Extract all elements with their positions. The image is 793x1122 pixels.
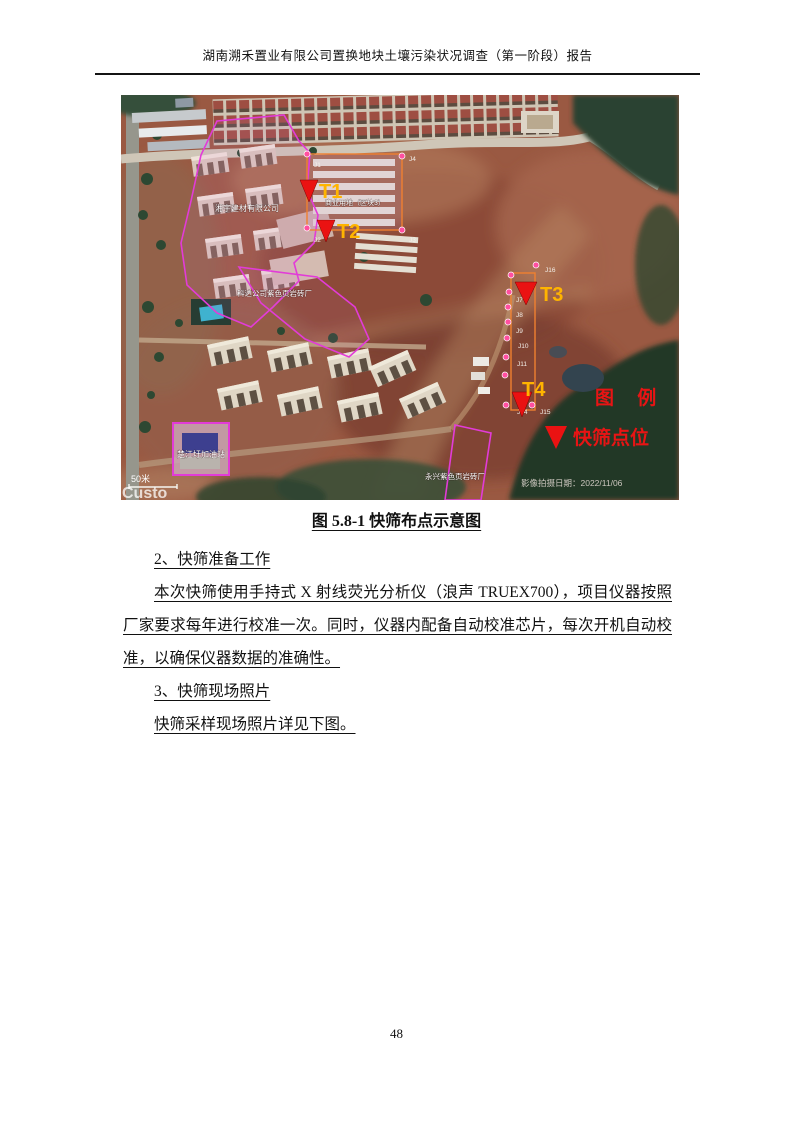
site-label-factory-left: 湘宇建材有限公司 bbox=[215, 203, 279, 213]
point-label-j8: J8 bbox=[516, 312, 523, 319]
pond-small bbox=[549, 346, 567, 358]
satellite-map: J1 J2 J3 J4 J16 J7 J8 J9 J10 J11 J14 J15… bbox=[121, 95, 679, 500]
site-label-gas-station: 楚江圩加油站 bbox=[177, 449, 225, 459]
point-label-j11: J11 bbox=[517, 361, 527, 368]
point-label-j16: J16 bbox=[545, 267, 556, 274]
marker-label-t4: T4 bbox=[522, 379, 546, 401]
section3-heading-text: 3、快筛现场照片 bbox=[154, 683, 270, 700]
capture-date: 影像拍摄日期：2022/11/06 bbox=[521, 478, 623, 488]
gas-station bbox=[173, 423, 229, 475]
scale-label: 50米 bbox=[131, 473, 150, 484]
body-text: 2、快筛准备工作 本次快筛使用手持式 X 射线荧光分析仪（浪声 TRUEX700… bbox=[123, 543, 672, 741]
marker-label-t2: T2 bbox=[337, 221, 360, 243]
marker-label-t1: T1 bbox=[319, 181, 342, 203]
point-label-j1: J1 bbox=[314, 162, 321, 169]
header-title: 湖南溯禾置业有限公司置换地块土壤污染状况调查（第一阶段）报告 bbox=[202, 49, 592, 63]
site-label-brick-factory: 科达公司紫色页岩砖厂 bbox=[237, 288, 312, 298]
point-label-j2: J2 bbox=[314, 237, 321, 244]
section3-heading: 3、快筛现场照片 bbox=[123, 675, 672, 708]
map-watermark: Custo bbox=[122, 485, 168, 500]
point-label-j15: J15 bbox=[540, 409, 551, 416]
point-label-j4: J4 bbox=[409, 156, 416, 163]
site-label-brick-factory-south: 永兴紫色页岩砖厂 bbox=[425, 471, 485, 481]
point-label-j7: J7 bbox=[516, 297, 523, 304]
point-label-j9: J9 bbox=[516, 328, 523, 335]
figure-caption: 图 5.8-1 快筛布点示意图 bbox=[0, 507, 793, 531]
page-header: 湖南溯禾置业有限公司置换地块土壤污染状况调查（第一阶段）报告 bbox=[95, 45, 700, 75]
paragraph-photos-text: 快筛采样现场照片详见下图。 bbox=[154, 716, 356, 733]
legend-title: 图 例 bbox=[595, 386, 665, 409]
paragraph-instrument: 本次快筛使用手持式 X 射线荧光分析仪（浪声 TRUEX700），项目仪器按照厂… bbox=[123, 576, 672, 675]
section2-heading-text: 2、快筛准备工作 bbox=[154, 551, 270, 568]
page-number: 48 bbox=[0, 1026, 793, 1042]
section2-heading: 2、快筛准备工作 bbox=[123, 543, 672, 576]
paragraph-photos: 快筛采样现场照片详见下图。 bbox=[123, 708, 672, 741]
paragraph-instrument-text: 本次快筛使用手持式 X 射线荧光分析仪（浪声 TRUEX700），项目仪器按照厂… bbox=[123, 584, 672, 667]
point-label-j3: J3 bbox=[409, 237, 416, 244]
satellite-map-figure: J1 J2 J3 J4 J16 J7 J8 J9 J10 J11 J14 J15… bbox=[121, 95, 679, 500]
report-page: 湖南溯禾置业有限公司置换地块土壤污染状况调查（第一阶段）报告 bbox=[0, 0, 793, 1122]
marker-label-t3: T3 bbox=[540, 284, 563, 306]
legend-item-label: 快筛点位 bbox=[573, 426, 649, 449]
point-label-j10: J10 bbox=[518, 343, 529, 350]
